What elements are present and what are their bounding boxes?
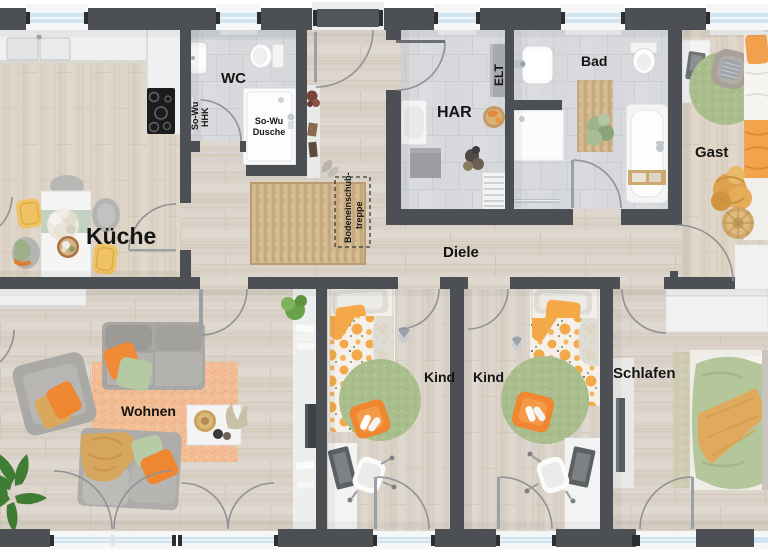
svg-text:Schlafen: Schlafen: [613, 365, 676, 382]
svg-text:Kind: Kind: [473, 369, 504, 385]
svg-text:ELT: ELT: [492, 64, 506, 86]
svg-text:HAR: HAR: [437, 104, 472, 121]
svg-text:treppe: treppe: [354, 201, 364, 229]
svg-text:So-Wu: So-Wu: [190, 102, 200, 130]
svg-text:WC: WC: [221, 70, 246, 87]
svg-text:Küche: Küche: [86, 223, 156, 249]
svg-text:Gast: Gast: [695, 144, 728, 161]
svg-text:Diele: Diele: [443, 244, 479, 261]
svg-text:Bad: Bad: [581, 53, 607, 69]
svg-text:Bodeneinschub-: Bodeneinschub-: [343, 172, 353, 243]
svg-text:So-Wu: So-Wu: [255, 116, 283, 126]
svg-text:Wohnen: Wohnen: [121, 403, 176, 419]
svg-text:HHK: HHK: [200, 107, 210, 127]
svg-text:Kind: Kind: [424, 369, 455, 385]
svg-text:Dusche: Dusche: [253, 127, 286, 137]
